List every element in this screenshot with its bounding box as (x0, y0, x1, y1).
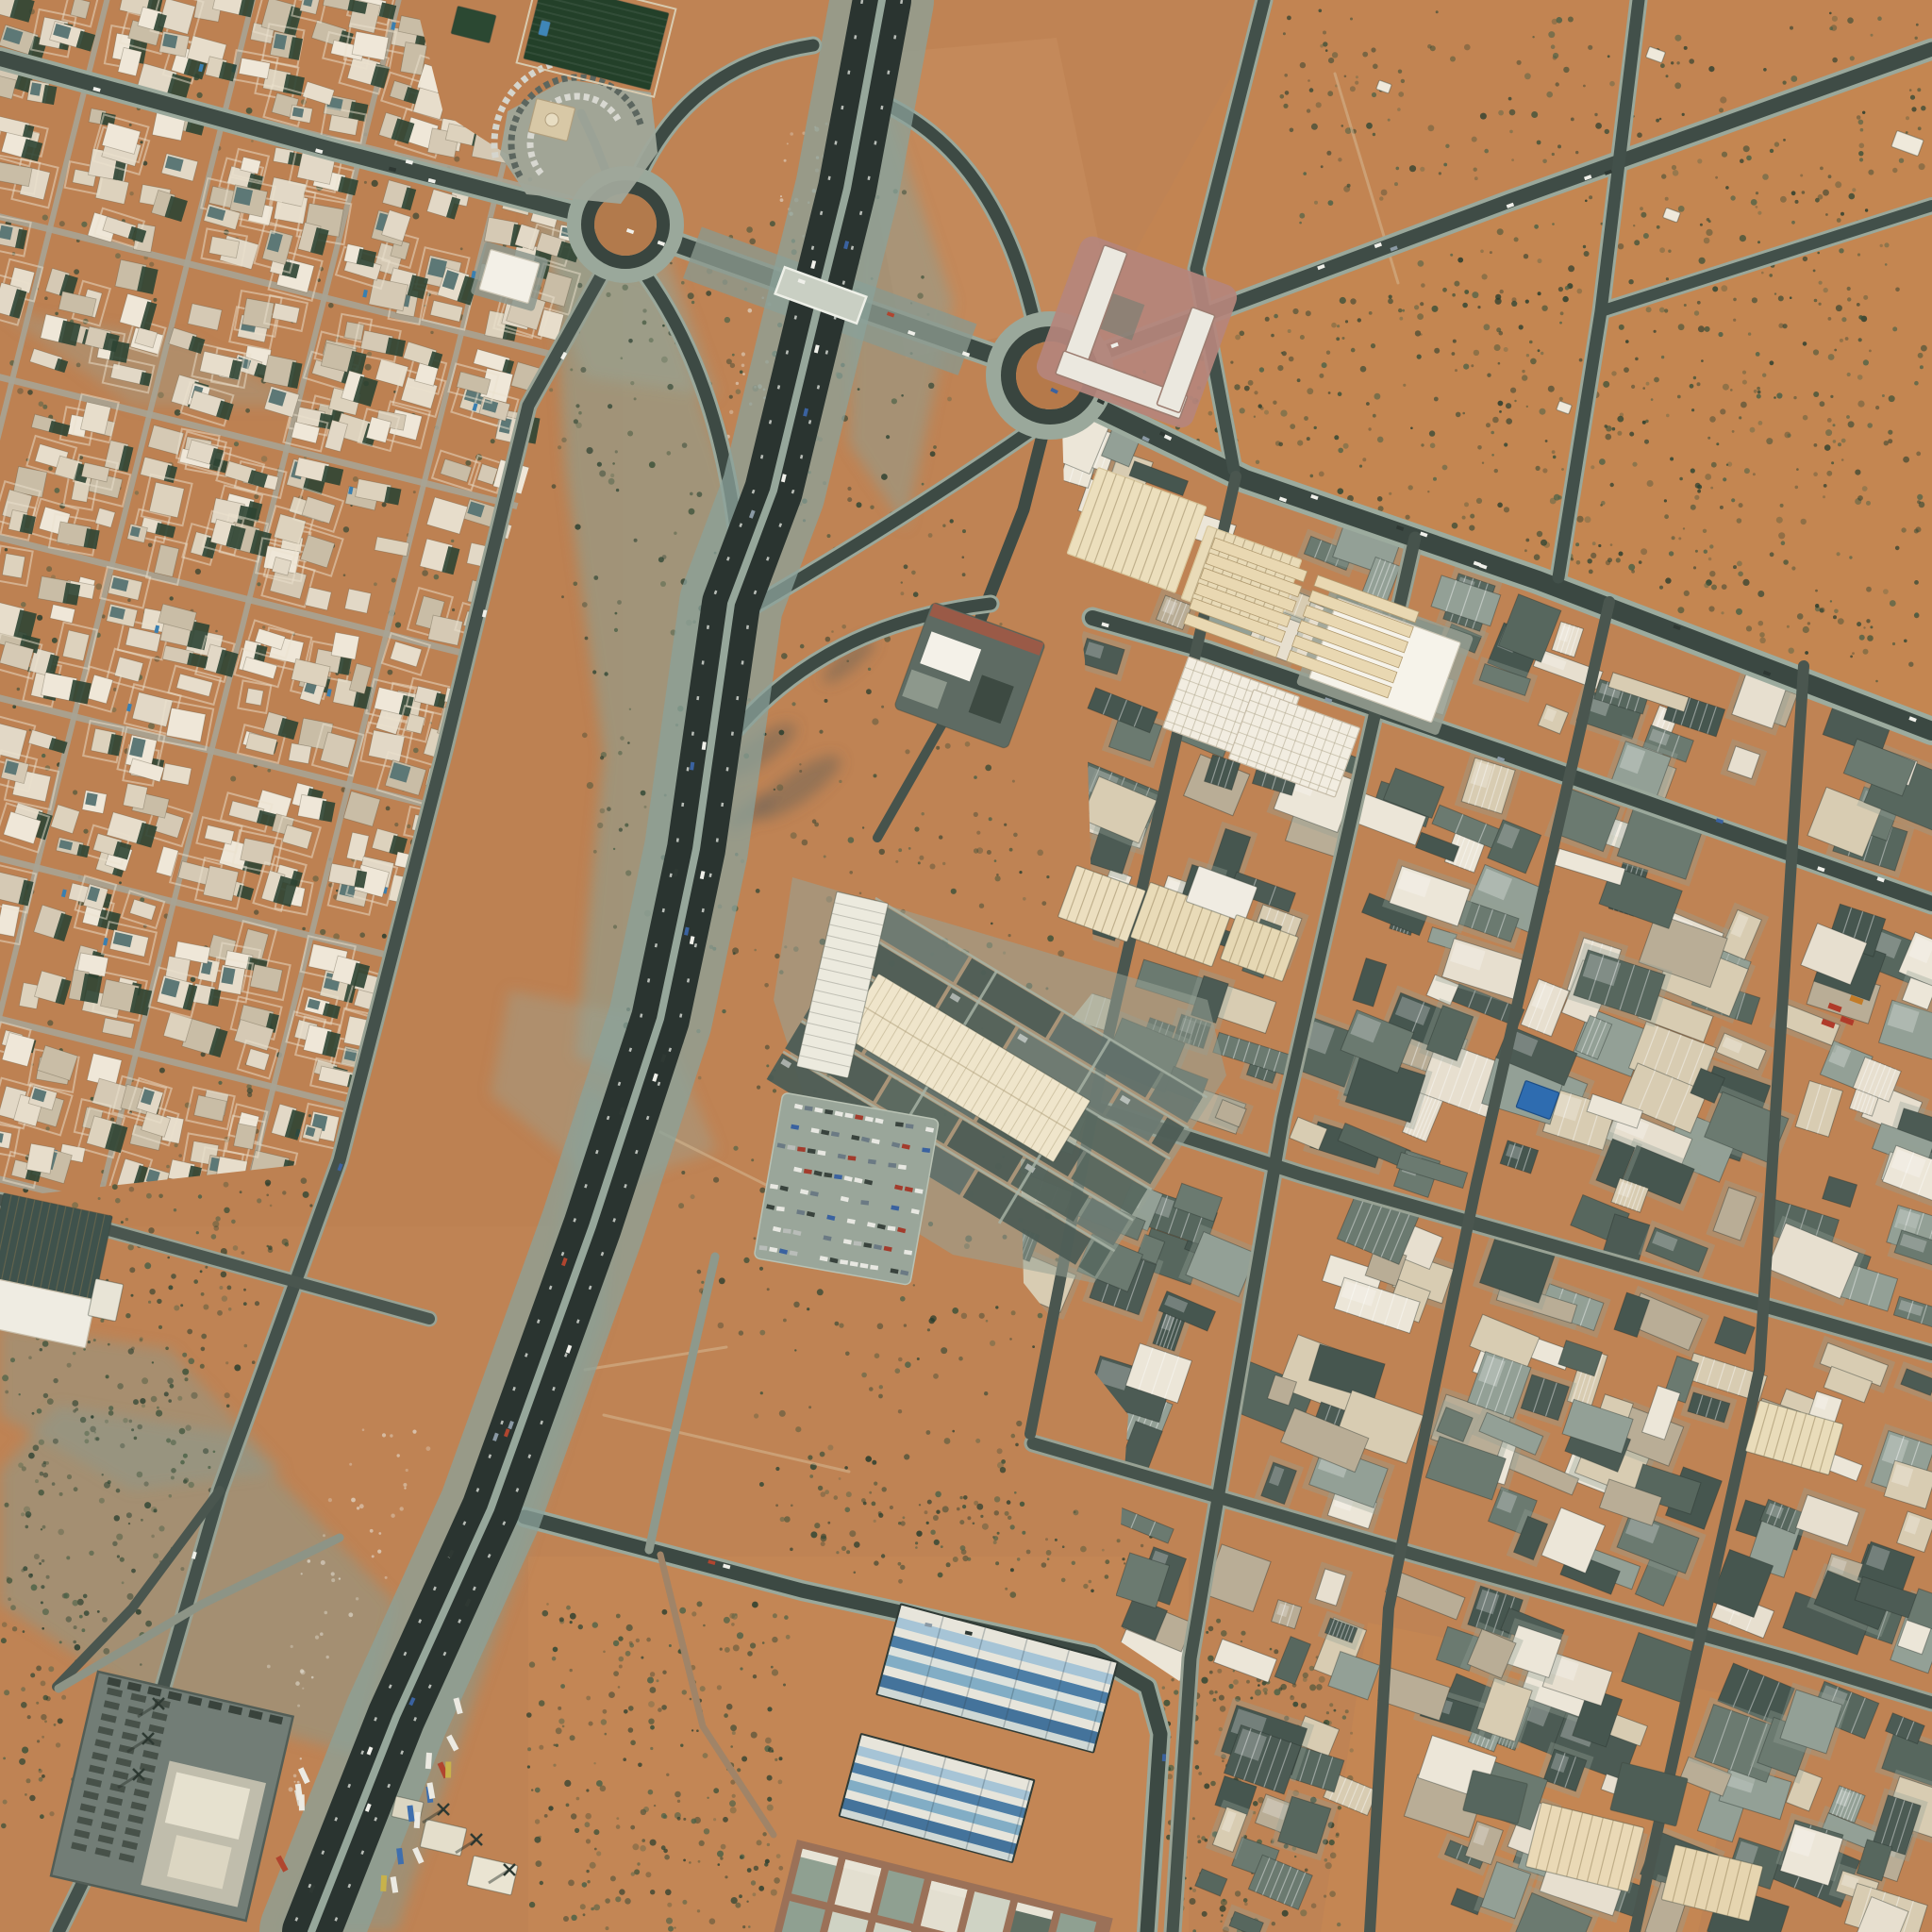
vehicle-parking-lot (754, 1092, 939, 1285)
satellite-map-canvas[interactable] (0, 0, 1932, 1932)
satellite-image (0, 0, 1932, 1932)
